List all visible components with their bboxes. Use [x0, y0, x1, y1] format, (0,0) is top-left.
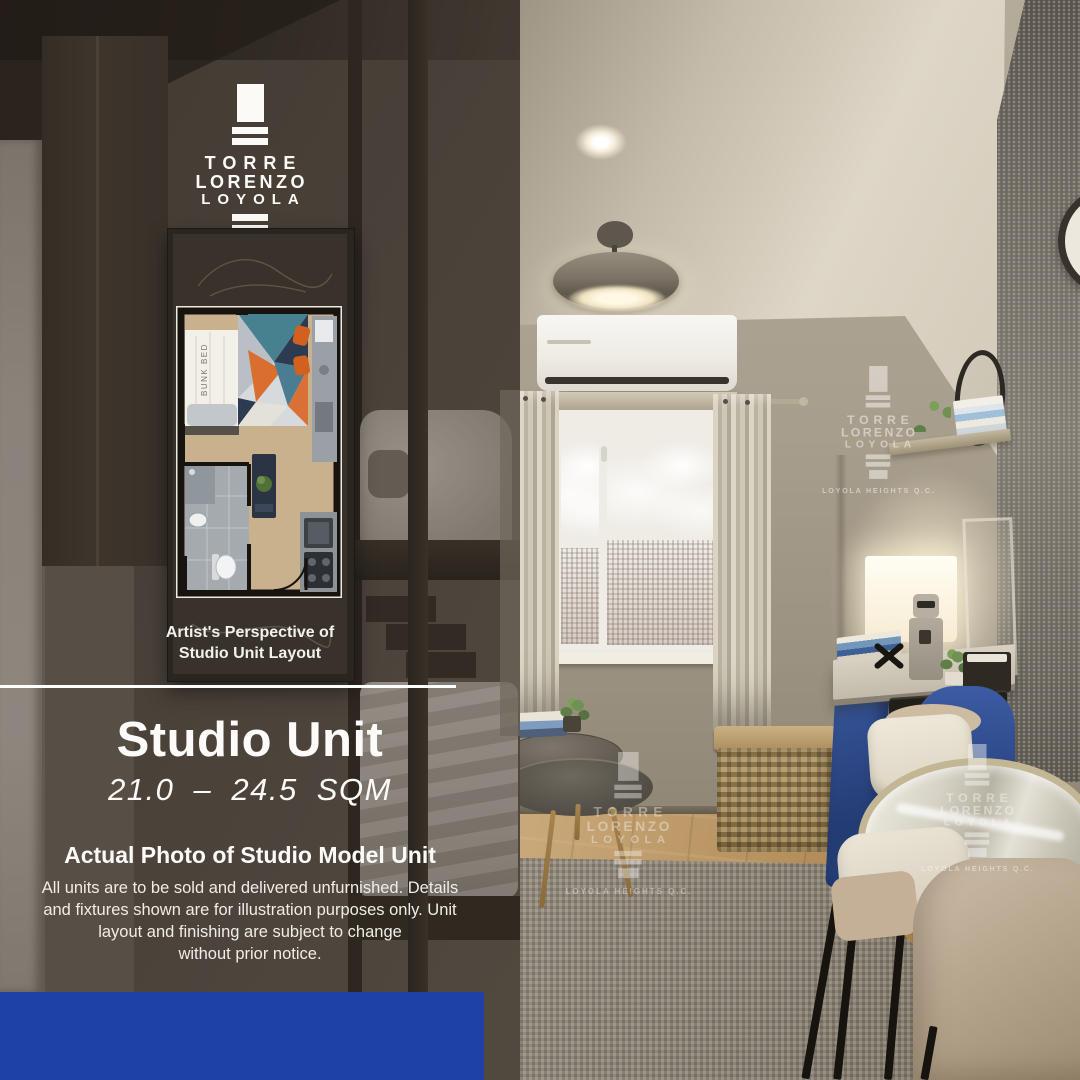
recessed-ceiling-light: [575, 124, 627, 160]
robot-figurine-chest: [919, 630, 931, 644]
plan-toilet: [216, 555, 236, 579]
logomark-stripe-icon: [232, 127, 268, 134]
curtain-right: [713, 394, 771, 742]
brand-name-line3: LOYOLA: [194, 192, 306, 209]
logomark-bar-icon: [968, 848, 986, 857]
disclaimer-line: without prior notice.: [0, 944, 500, 966]
tissue-box-top: [967, 654, 1007, 662]
jack-ornament: [869, 638, 909, 674]
logomark-stripe-icon: [866, 403, 890, 408]
brand-name-line2: LORENZO: [839, 426, 918, 439]
marketing-poster: TORRE LORENZO LOYOLA LOYOLA HEIGHTS Q.C.…: [0, 0, 1080, 1080]
plan-bed-label: BUNK BED: [200, 343, 209, 396]
curtain-grommet: [723, 399, 728, 404]
window-sill: [545, 652, 731, 664]
plan-caption-line2: Studio Unit Layout: [0, 643, 500, 664]
floor-plan: BUNK BED: [176, 306, 342, 598]
brand-name-line2: LORENZO: [584, 820, 672, 834]
logomark-bar-icon: [968, 744, 986, 770]
curtain-grommet: [541, 397, 546, 402]
logomark-stripe-icon: [965, 840, 989, 845]
woven-chest: [717, 748, 839, 852]
logomark-stripe-icon: [965, 773, 989, 778]
curtain-left: [517, 391, 559, 735]
city-view-right: [607, 540, 715, 645]
woven-chest-lid: [714, 726, 842, 750]
plan-caption: Artist's Perspective of Studio Unit Layo…: [0, 622, 500, 664]
unit-size-range: 21.0 – 24.5 SQM: [0, 772, 500, 808]
left-overlay-panel: TORRE LORENZO LOYOLA LOYOLA HEIGHTS Q.C.: [0, 0, 520, 1080]
unit-title: Studio Unit: [0, 712, 500, 768]
logomark-bar-icon: [237, 84, 264, 122]
window-handle: [601, 446, 607, 462]
curtain-grommet: [745, 400, 750, 405]
disclaimer-line: All units are to be sold and delivered u…: [0, 878, 500, 900]
logomark-stripe-icon: [614, 793, 641, 798]
brand-name-line1: TORRE: [842, 414, 913, 427]
logomark-bar-icon: [869, 470, 887, 479]
brand-name-line1: TORRE: [588, 805, 668, 819]
dining-chair-seat: [830, 870, 920, 942]
brand-name-line3: LOYOLA: [840, 439, 916, 450]
logomark-stripe-icon: [614, 851, 641, 856]
accent-blue-bar: [0, 992, 484, 1080]
desk-plant-pot: [945, 672, 963, 685]
logomark-stripe-icon: [965, 833, 989, 838]
brand-name-line1: TORRE: [198, 154, 303, 173]
interior-photo: [517, 0, 1080, 1080]
brand-name-line1: TORRE: [941, 792, 1012, 805]
logomark-stripe-icon: [866, 395, 890, 400]
watermark-logo: TORRE LORENZO LOYOLA LOYOLA HEIGHTS Q.C.: [807, 366, 948, 495]
frame-sketch-doodle: [180, 240, 340, 304]
brand-name-line3: LOYOLA: [586, 834, 671, 847]
logomark-stripe-icon: [866, 462, 890, 467]
logomark-stripe-icon: [232, 138, 268, 145]
dining-chair: [913, 858, 1080, 1080]
robot-figurine-visor: [917, 601, 935, 608]
logomark-bar-icon: [618, 752, 639, 781]
brand-name-line2: LORENZO: [192, 173, 308, 192]
brand-name-line2: LORENZO: [938, 804, 1017, 817]
divider-line: [0, 685, 456, 688]
plant-pot: [563, 716, 581, 732]
logomark-stripe-icon: [614, 859, 641, 864]
logomark-bar-icon: [869, 366, 887, 392]
logomark-stripe-icon: [614, 785, 641, 790]
disclaimer-line: and fixtures shown are for illustration …: [0, 900, 500, 922]
ceiling-shadow: [517, 0, 817, 220]
ac-sticker: [547, 340, 591, 344]
disclaimer-line: layout and finishing are subject to chan…: [0, 922, 500, 944]
brand-location: LOYOLA HEIGHTS Q.C.: [919, 865, 1034, 873]
watermark-logo: TORRE LORENZO LOYOLA LOYOLA HEIGHTS Q.C.: [906, 744, 1047, 873]
watermark-logo: TORRE LORENZO LOYOLA LOYOLA HEIGHTS Q.C.: [549, 752, 707, 897]
disclaimer: All units are to be sold and delivered u…: [0, 878, 500, 966]
brand-location: LOYOLA HEIGHTS Q.C.: [820, 487, 935, 495]
city-view-left: [561, 548, 599, 644]
curtain-grommet: [523, 396, 528, 401]
logomark-stripe-icon: [232, 214, 268, 221]
model-photo-heading: Actual Photo of Studio Model Unit: [0, 842, 500, 869]
logomark-stripe-icon: [866, 455, 890, 460]
logomark-stripe-icon: [965, 781, 989, 786]
plan-caption-line1: Artist's Perspective of: [0, 622, 500, 643]
logomark-bar-icon: [618, 868, 639, 878]
brand-name-line3: LOYOLA: [939, 817, 1015, 828]
pendant-lamp-glow: [569, 285, 665, 312]
brand-location: LOYOLA HEIGHTS Q.C.: [564, 887, 693, 896]
pendant-lamp-mount: [597, 221, 633, 248]
ac-vent: [545, 377, 729, 384]
